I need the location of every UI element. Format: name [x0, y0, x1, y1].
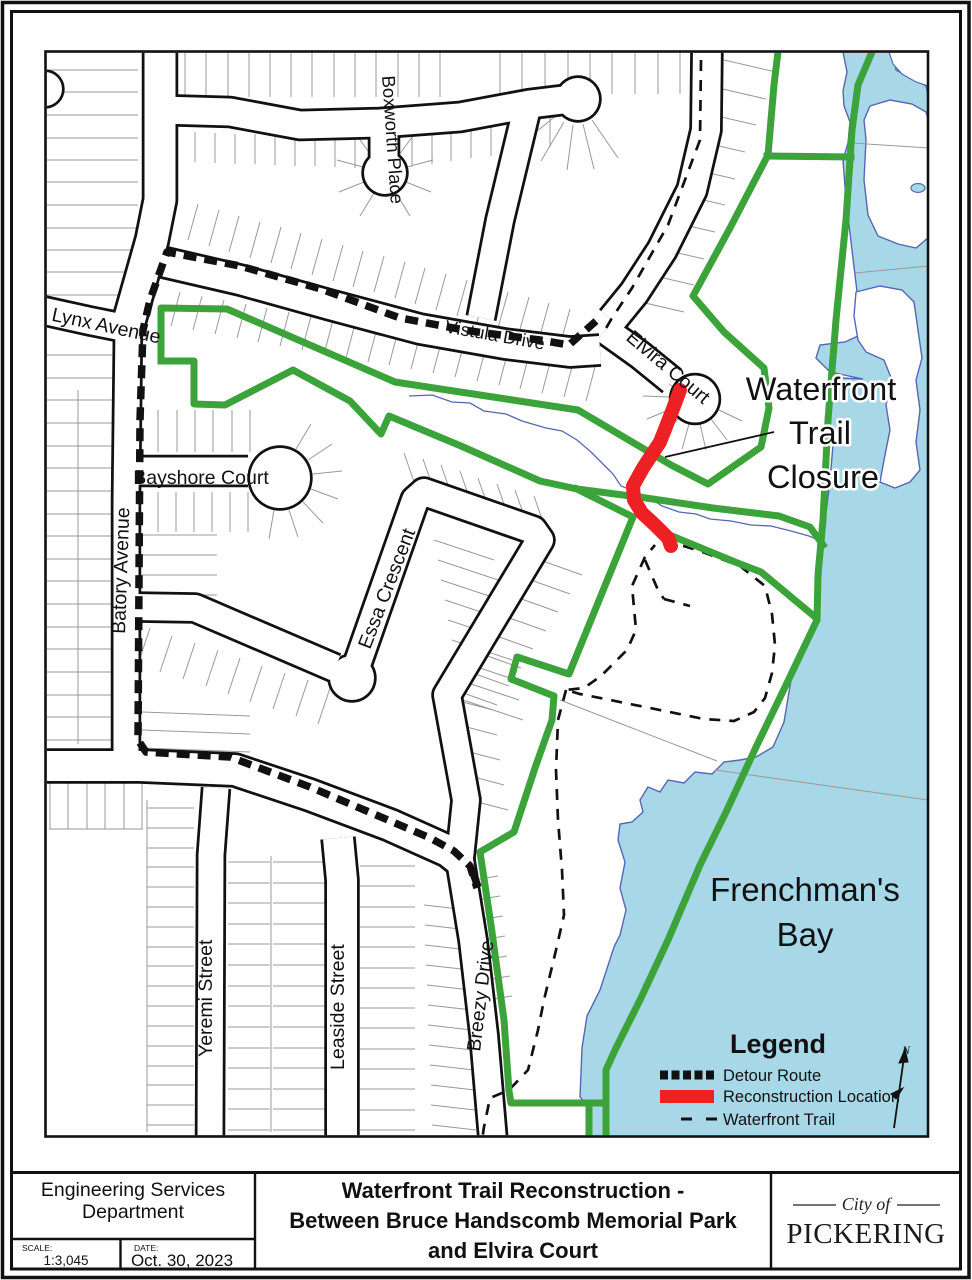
svg-text:Frenchman's: Frenchman's	[710, 871, 900, 908]
svg-text:Yeremi Street: Yeremi Street	[195, 939, 217, 1057]
svg-text:1:3,045: 1:3,045	[43, 1253, 88, 1268]
svg-text:Bayshore Court: Bayshore Court	[133, 467, 269, 489]
svg-text:Closure: Closure	[767, 459, 879, 495]
svg-text:Bay: Bay	[777, 916, 834, 953]
svg-text:Waterfront Trail Reconstructio: Waterfront Trail Reconstruction -	[342, 1178, 685, 1203]
svg-text:Engineering Services: Engineering Services	[41, 1179, 226, 1201]
svg-text:Waterfront Trail: Waterfront Trail	[723, 1111, 835, 1129]
svg-text:Legend: Legend	[730, 1029, 826, 1059]
svg-text:SCALE:: SCALE:	[22, 1243, 52, 1253]
svg-text:Waterfront: Waterfront	[746, 371, 897, 407]
svg-text:Trail: Trail	[789, 415, 851, 451]
svg-text:City of: City of	[842, 1194, 893, 1214]
svg-text:N: N	[901, 1043, 911, 1057]
svg-text:Oct. 30, 2023: Oct. 30, 2023	[131, 1251, 233, 1270]
svg-text:Department: Department	[82, 1201, 184, 1223]
svg-text:Leaside Street: Leaside Street	[327, 944, 349, 1070]
svg-text:Between Bruce Handscomb Memori: Between Bruce Handscomb Memorial Park	[289, 1208, 737, 1233]
svg-text:Detour Route: Detour Route	[723, 1067, 821, 1085]
svg-text:Batory Avenue: Batory Avenue	[108, 507, 134, 634]
svg-text:Reconstruction Location: Reconstruction Location	[723, 1088, 900, 1106]
svg-text:PICKERING: PICKERING	[786, 1218, 945, 1250]
svg-text:and Elvira Court: and Elvira Court	[428, 1238, 599, 1263]
